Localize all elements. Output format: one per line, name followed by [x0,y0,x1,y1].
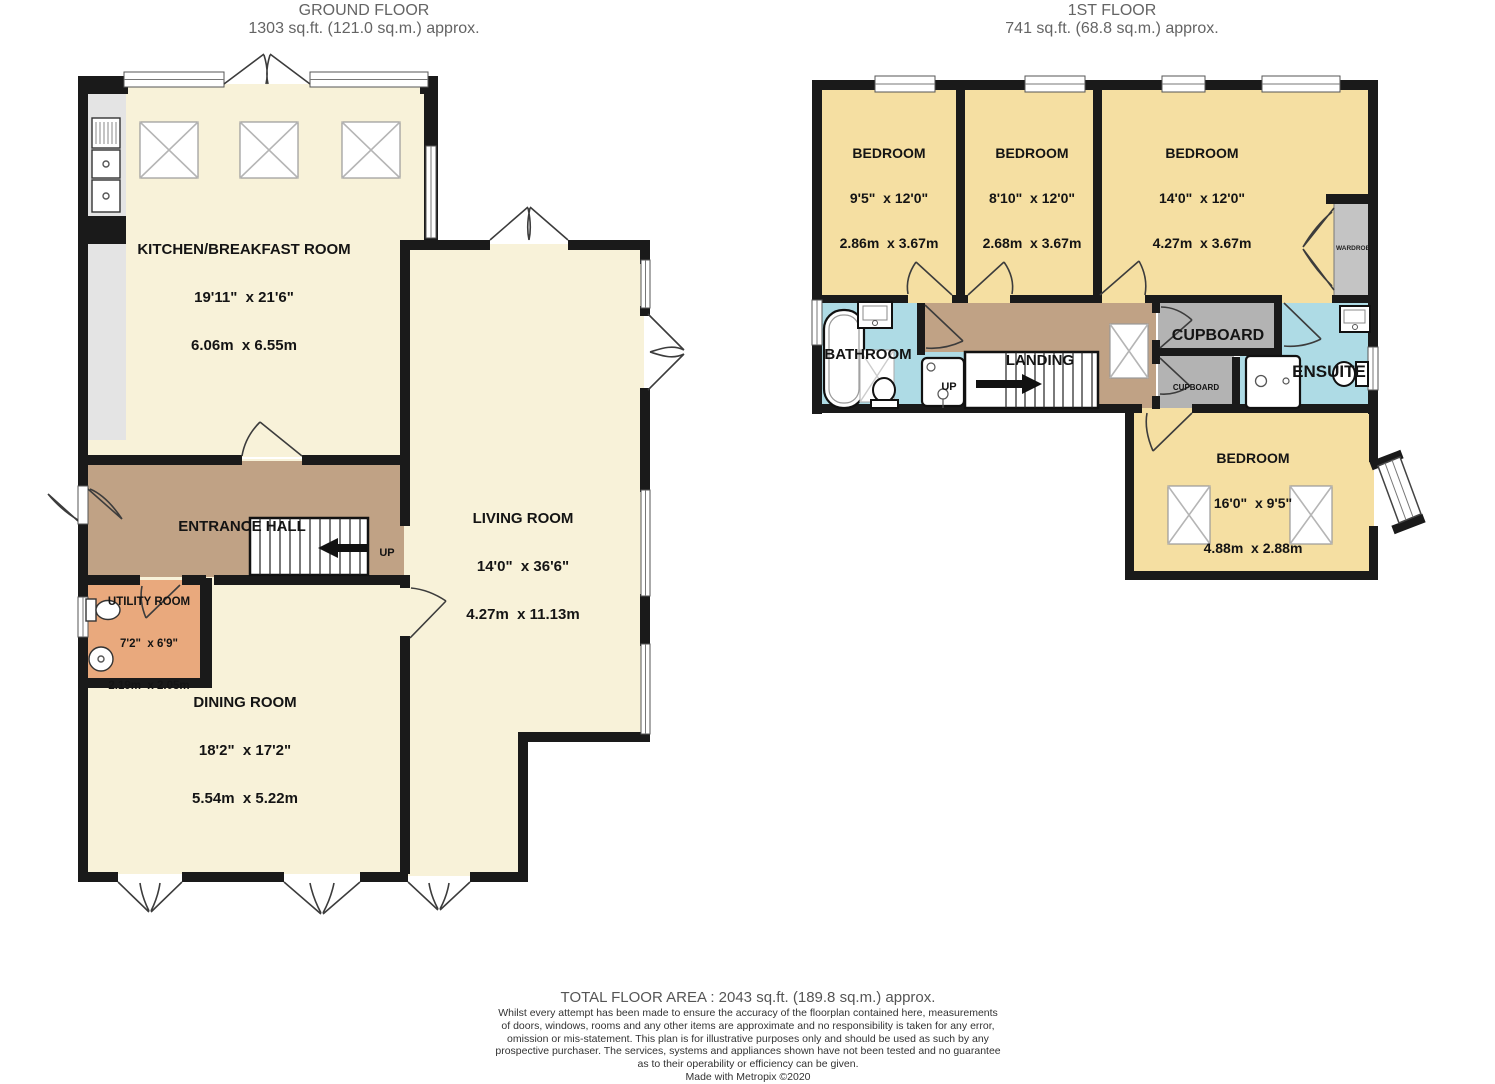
room-dims-metric: 4.27m x 3.67m [1153,236,1252,251]
room-name: CUPBOARD [1173,384,1219,392]
living-top-doors [490,207,568,240]
floorplan-page: GROUND FLOOR 1303 sq.ft. (121.0 sq.m.) a… [0,0,1495,1080]
room-dims-imperial: 18'2" x 17'2" [192,743,298,759]
disclaimer-line: prospective purchaser. The services, sys… [495,1045,1000,1058]
disclaimer: Whilst every attempt has been made to en… [495,1007,1000,1084]
front-door-opening [78,486,88,524]
first-floor-title: 1ST FLOOR 741 sq.ft. (68.8 sq.m.) approx… [1005,2,1218,38]
bedroom4-angled-window [1371,454,1424,530]
kitchen-patio-doors [224,54,310,84]
ff-up-label: UP [941,360,956,404]
living-french-doors [648,314,684,390]
room-name: DINING ROOM [192,695,298,711]
dining-patio-doors [118,882,182,912]
utility-room-label: UTILITY ROOM 7'2" x 6'9" 2.19m x 2.05m [108,567,190,707]
wardrobe-label: WARDROBE [1336,245,1368,252]
dining-patio-doors [284,882,360,914]
room-dims-metric: 2.19m x 2.05m [108,679,190,693]
room-dims-imperial: 14'0" x 36'6" [466,559,579,575]
room-dims-metric: 2.86m x 3.67m [840,236,939,251]
ground-floor-title: GROUND FLOOR 1303 sq.ft. (121.0 sq.m.) a… [248,2,479,38]
room-dims-metric: 6.06m x 6.55m [137,338,350,354]
room-dims-metric: 4.88m x 2.88m [1204,541,1303,556]
disclaimer-line: as to their operability or efficiency ca… [495,1058,1000,1071]
room-name: BATHROOM [824,347,911,363]
landing-label: LANDING [1006,321,1074,385]
cupboard-top-label: CUPBOARD [1172,291,1264,363]
first-floor-title-text: 1ST FLOOR [1005,2,1218,20]
room-name: LIVING ROOM [466,511,579,527]
disclaimer-line: of doors, windows, rooms and any other i… [495,1020,1000,1033]
ensuite-label: ENSUITE [1292,327,1366,399]
room-name: UTILITY ROOM [108,595,190,609]
toilet-icon [86,599,96,621]
dining-room-label: DINING ROOM 18'2" x 17'2" 5.54m x 5.22m [192,663,298,823]
up-text: UP [941,382,956,393]
ground-floor-area-text: 1303 sq.ft. (121.0 sq.m.) approx. [248,20,479,38]
first-floor-area-text: 741 sq.ft. (68.8 sq.m.) approx. [1005,20,1218,38]
disclaimer-line: Whilst every attempt has been made to en… [495,1007,1000,1020]
sink-unit-icon [92,180,120,212]
room-dims-imperial: 16'0" x 9'5" [1204,496,1303,511]
ground-floor-title-text: GROUND FLOOR [248,2,479,20]
bedroom1-label: BEDROOM 9'5" x 12'0" 2.86m x 3.67m [840,116,939,266]
living-patio-doors [408,882,470,910]
cupboard-bottom-label: CUPBOARD [1173,368,1219,400]
kitchen-label: KITCHEN/BREAKFAST ROOM 19'11" x 21'6" 6.… [137,210,350,370]
gf-up-label: UP [379,526,394,570]
room-name: ENSUITE [1292,363,1366,381]
bedroom4-label: BEDROOM 16'0" x 9'5" 4.88m x 2.88m [1204,421,1303,571]
bedroom3-label: BEDROOM 14'0" x 12'0" 4.27m x 3.67m [1153,116,1252,266]
room-name: CUPBOARD [1172,327,1264,345]
room-name: KITCHEN/BREAKFAST ROOM [137,242,350,258]
room-dims-metric: 5.54m x 5.22m [192,791,298,807]
kitchen-appliances [92,118,120,212]
toilet-icon [873,378,895,402]
room-name: LANDING [1006,353,1074,369]
room-dims-imperial: 8'10" x 12'0" [983,191,1082,206]
room-name: ENTRANCE HALL [178,519,306,535]
total-floor-area: TOTAL FLOOR AREA : 2043 sq.ft. (189.8 sq… [561,989,936,1006]
ground-floor-plan [48,54,684,914]
room-dims-imperial: 7'2" x 6'9" [108,637,190,651]
sink-unit-icon [92,150,120,178]
bedroom2-label: BEDROOM 8'10" x 12'0" 2.68m x 3.67m [983,116,1082,266]
room-dims-imperial: 9'5" x 12'0" [840,191,939,206]
room-name: BEDROOM [1204,451,1303,466]
living-room-label: LIVING ROOM 14'0" x 36'6" 4.27m x 11.13m [466,479,579,639]
room-dims-imperial: 19'11" x 21'6" [137,290,350,306]
entrance-hall-label: ENTRANCE HALL [178,487,306,551]
room-name: BEDROOM [983,146,1082,161]
up-text: UP [379,548,394,559]
bathroom-label: BATHROOM [824,315,911,379]
room-dims-metric: 4.27m x 11.13m [466,607,579,623]
room-name: BEDROOM [840,146,939,161]
toilet-icon [871,400,898,408]
room-dims-imperial: 14'0" x 12'0" [1153,191,1252,206]
kitchen-skylights [140,122,400,178]
room-dims-metric: 2.68m x 3.67m [983,236,1082,251]
disclaimer-line: omission or mis-statement. This plan is … [495,1033,1000,1046]
room-name: BEDROOM [1153,146,1252,161]
credit-line: Made with Metropix ©2020 [495,1071,1000,1084]
